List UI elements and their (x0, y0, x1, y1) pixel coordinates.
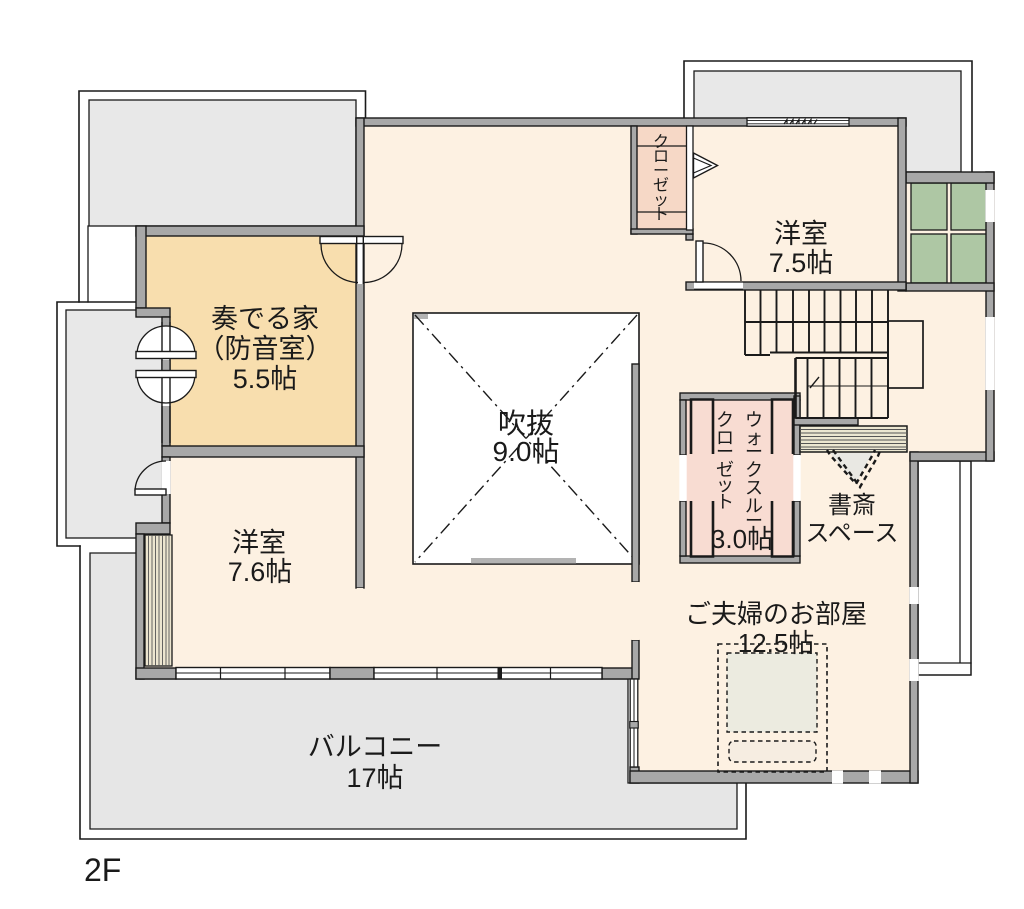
svg-text:吹抜: 吹抜 (498, 408, 554, 439)
svg-text:7.5帖: 7.5帖 (769, 248, 834, 278)
svg-text:ー: ー (745, 442, 763, 462)
svg-text:ス: ス (745, 478, 763, 498)
svg-text:2F: 2F (84, 852, 121, 888)
svg-text:ト: ト (716, 492, 734, 512)
svg-text:バルコニー: バルコニー (308, 732, 442, 762)
svg-text:洋室: 洋室 (774, 219, 828, 249)
svg-text:ー: ー (716, 442, 734, 462)
svg-text:ご夫婦のお部屋: ご夫婦のお部屋 (685, 599, 867, 629)
svg-text:（防音室）: （防音室） (198, 334, 333, 364)
svg-text:ク: ク (745, 460, 763, 480)
svg-text:17帖: 17帖 (346, 763, 403, 793)
svg-text:洋室: 洋室 (232, 528, 286, 558)
svg-text:3.0帖: 3.0帖 (711, 524, 773, 554)
svg-text:ウ: ウ (745, 410, 763, 430)
svg-text:ト: ト (653, 207, 669, 224)
svg-text:7.6帖: 7.6帖 (228, 557, 293, 587)
svg-text:12.5帖: 12.5帖 (738, 628, 815, 658)
svg-text:奏でる家: 奏でる家 (211, 304, 319, 334)
svg-text:ク: ク (716, 410, 734, 430)
svg-text:書斎: 書斎 (828, 492, 876, 519)
svg-text:5.5帖: 5.5帖 (233, 364, 298, 394)
svg-text:スペース: スペース (805, 520, 898, 547)
svg-text:9.0帖: 9.0帖 (493, 436, 560, 467)
